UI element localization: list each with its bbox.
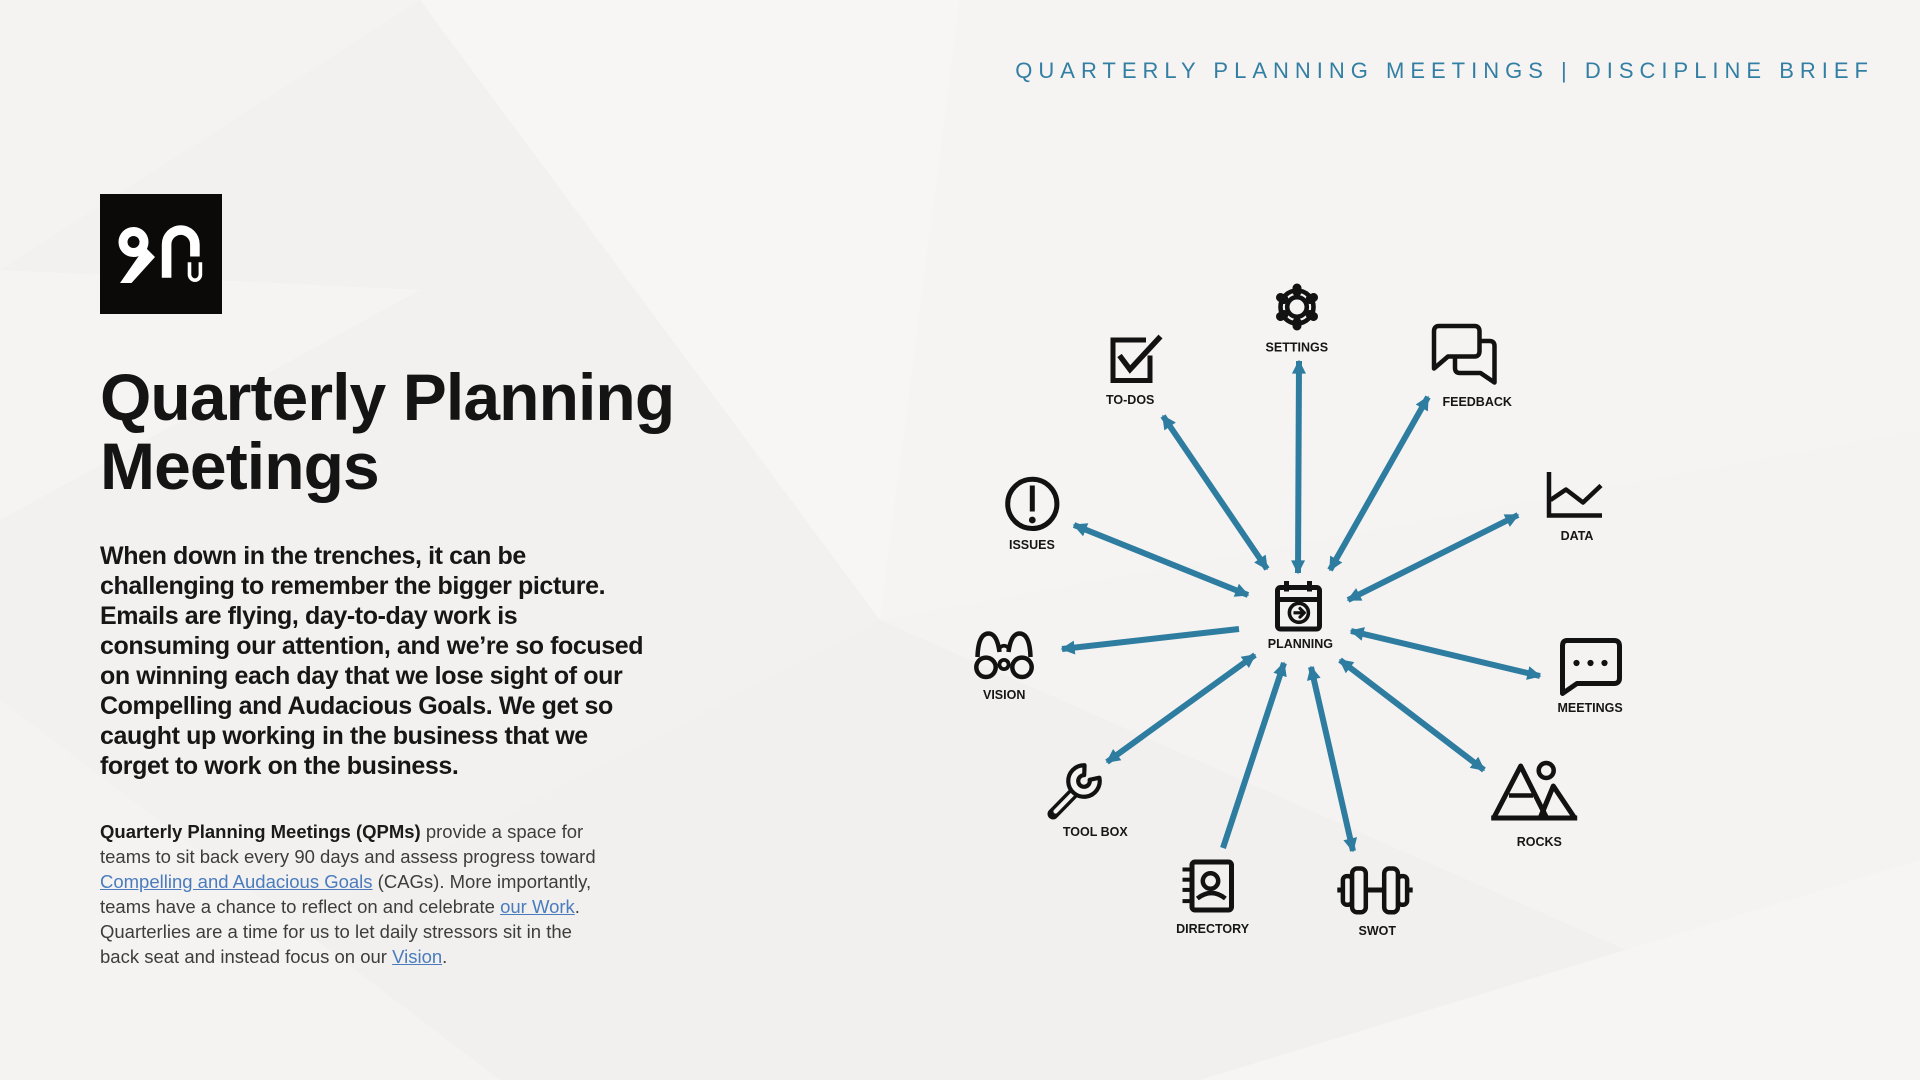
svg-text:ISSUES: ISSUES xyxy=(1009,538,1055,552)
svg-text:DIRECTORY: DIRECTORY xyxy=(1176,922,1250,936)
svg-text:TO-DOS: TO-DOS xyxy=(1106,393,1154,407)
svg-text:SWOT: SWOT xyxy=(1359,924,1397,938)
svg-text:DATA: DATA xyxy=(1561,529,1594,543)
svg-text:VISION: VISION xyxy=(983,688,1025,702)
svg-text:MEETINGS: MEETINGS xyxy=(1557,701,1622,715)
svg-text:ROCKS: ROCKS xyxy=(1517,835,1562,849)
svg-text:FEEDBACK: FEEDBACK xyxy=(1442,395,1511,409)
svg-text:TOOL BOX: TOOL BOX xyxy=(1063,825,1128,839)
svg-text:SETTINGS: SETTINGS xyxy=(1266,341,1329,355)
svg-text:PLANNING: PLANNING xyxy=(1268,637,1333,651)
